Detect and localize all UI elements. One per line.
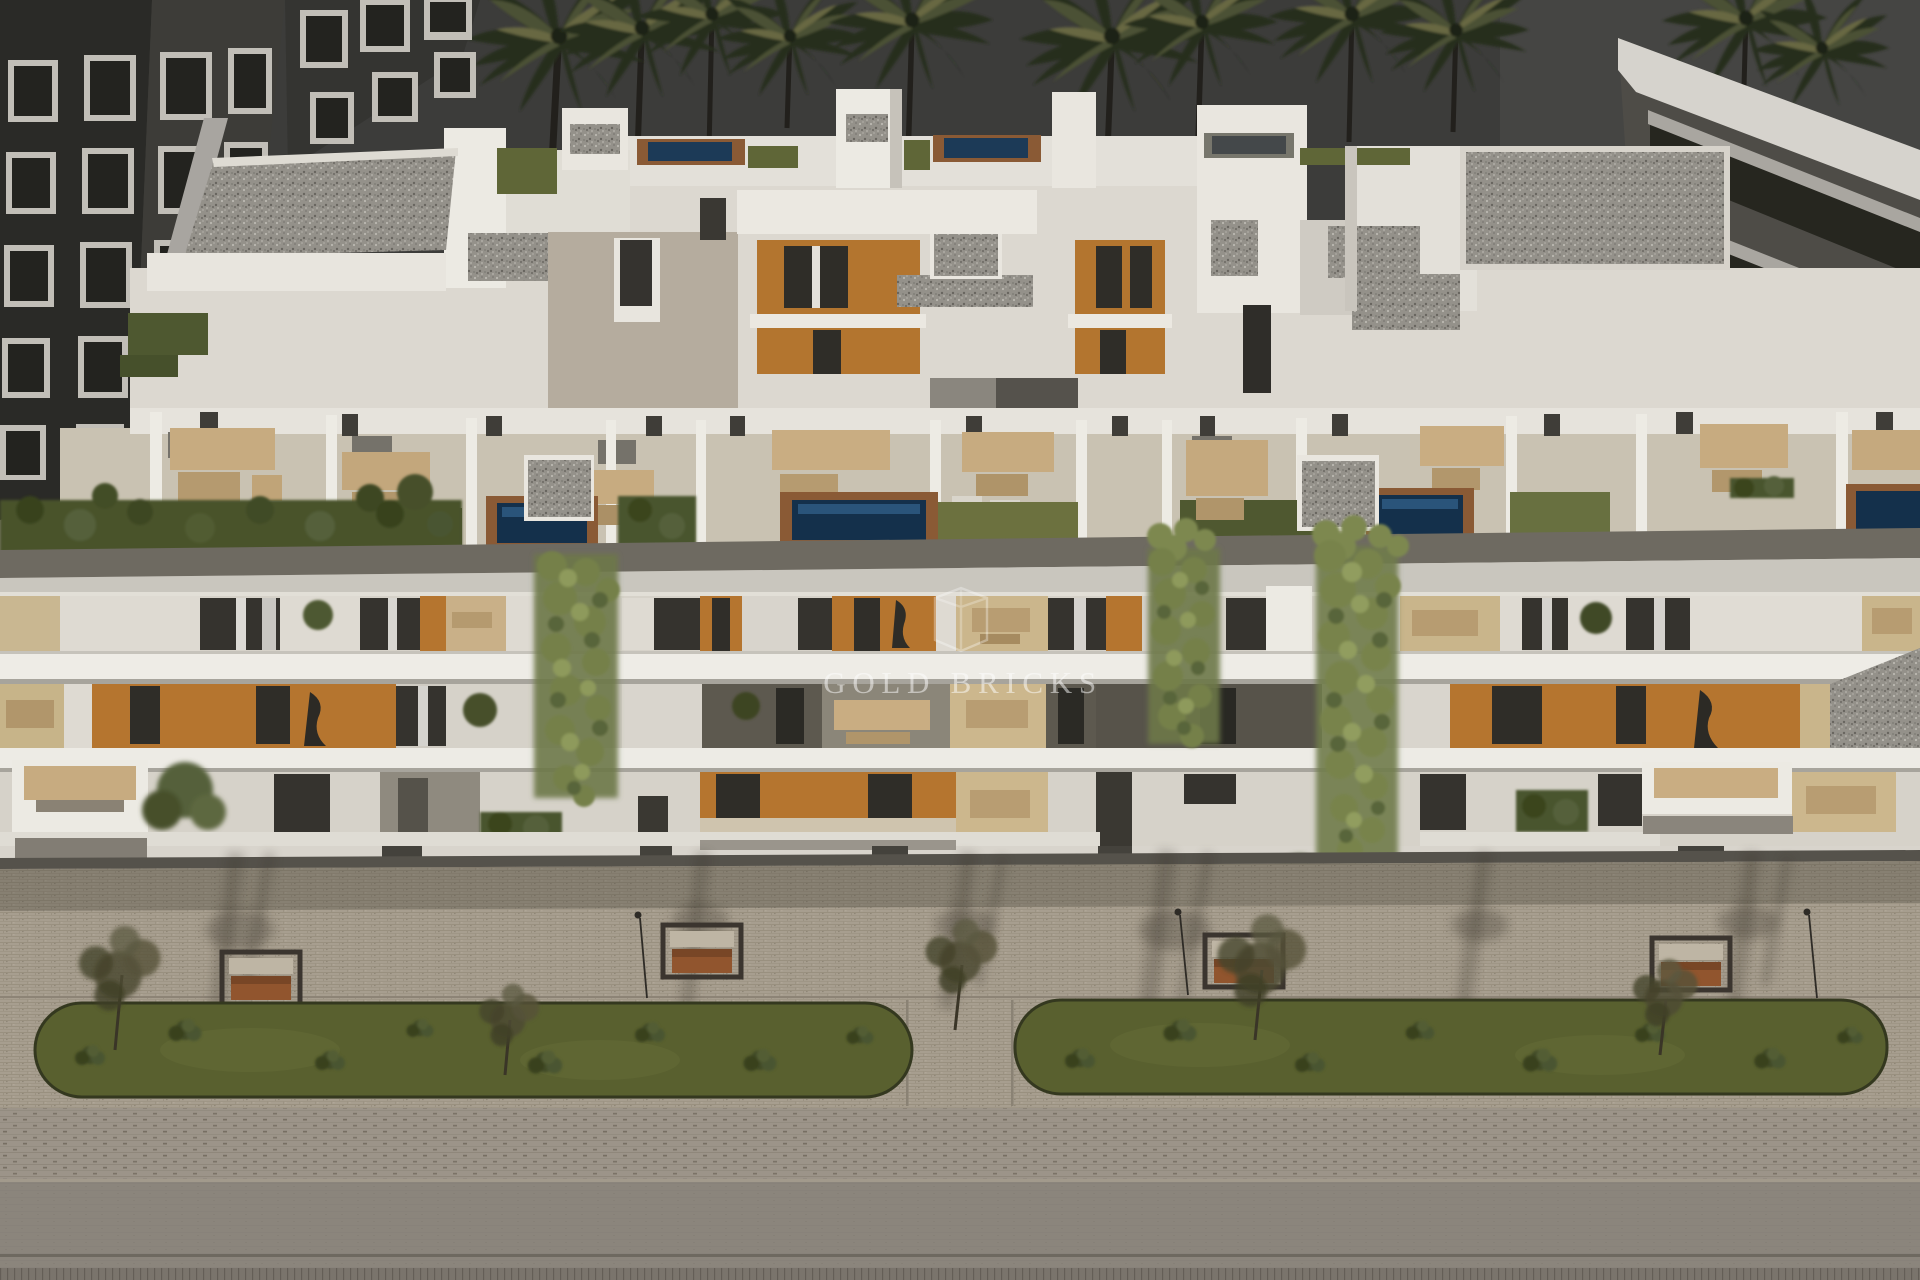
svg-text:GOLD BRICKS: GOLD BRICKS (823, 665, 1103, 700)
